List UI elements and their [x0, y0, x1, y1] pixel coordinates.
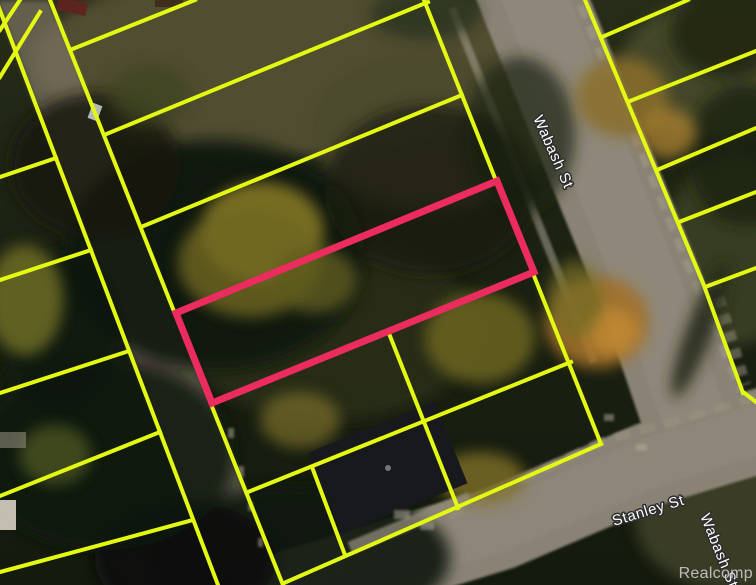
shed-white	[0, 500, 16, 530]
aerial-map: Wabash St Stanley St Wabash St	[0, 0, 756, 585]
satellite-imagery	[0, 0, 756, 585]
driveway-patch	[0, 432, 26, 448]
house-chimney	[385, 465, 391, 471]
map-viewport[interactable]: Wabash St Stanley St Wabash St Realcomp	[0, 0, 756, 585]
watermark-realcomp: Realcomp	[679, 565, 753, 583]
